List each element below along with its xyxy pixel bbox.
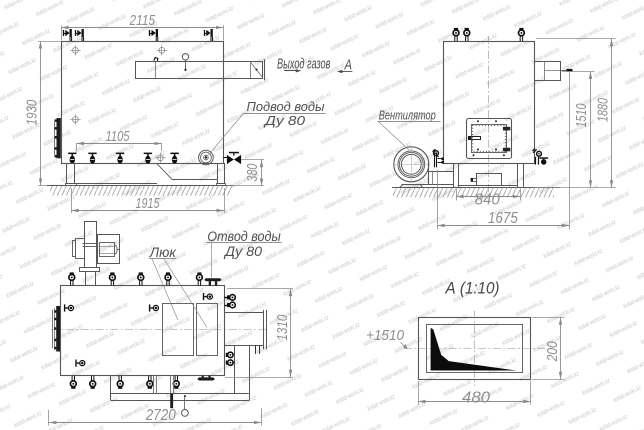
svg-text:200: 200 [544,341,561,362]
svg-text:Отвод воды: Отвод воды [207,228,281,244]
svg-text:+1510: +1510 [366,327,405,344]
svg-text:Люк: Люк [149,244,177,260]
svg-text:1880: 1880 [594,98,611,122]
svg-text:380: 380 [244,163,261,181]
svg-text:1930: 1930 [24,99,41,125]
svg-text:1510: 1510 [573,103,590,127]
svg-text:1105: 1105 [106,128,130,145]
svg-text:Подвод воды: Подвод воды [247,99,325,114]
svg-text:2115: 2115 [129,12,156,29]
svg-text:2720: 2720 [145,407,176,424]
svg-text:А (1:10): А (1:10) [445,279,500,298]
svg-text:Ду 80: Ду 80 [223,243,262,259]
svg-text:840: 840 [475,192,500,209]
svg-text:1675: 1675 [488,210,518,227]
svg-text:1310: 1310 [274,314,291,341]
svg-text:Вентилятор: Вентилятор [379,108,436,122]
svg-text:А: А [344,57,352,74]
svg-text:Ду 80: Ду 80 [263,113,306,128]
svg-text:1915: 1915 [136,195,160,212]
svg-text:480: 480 [462,390,490,407]
svg-text:Выход газов: Выход газов [277,55,330,72]
